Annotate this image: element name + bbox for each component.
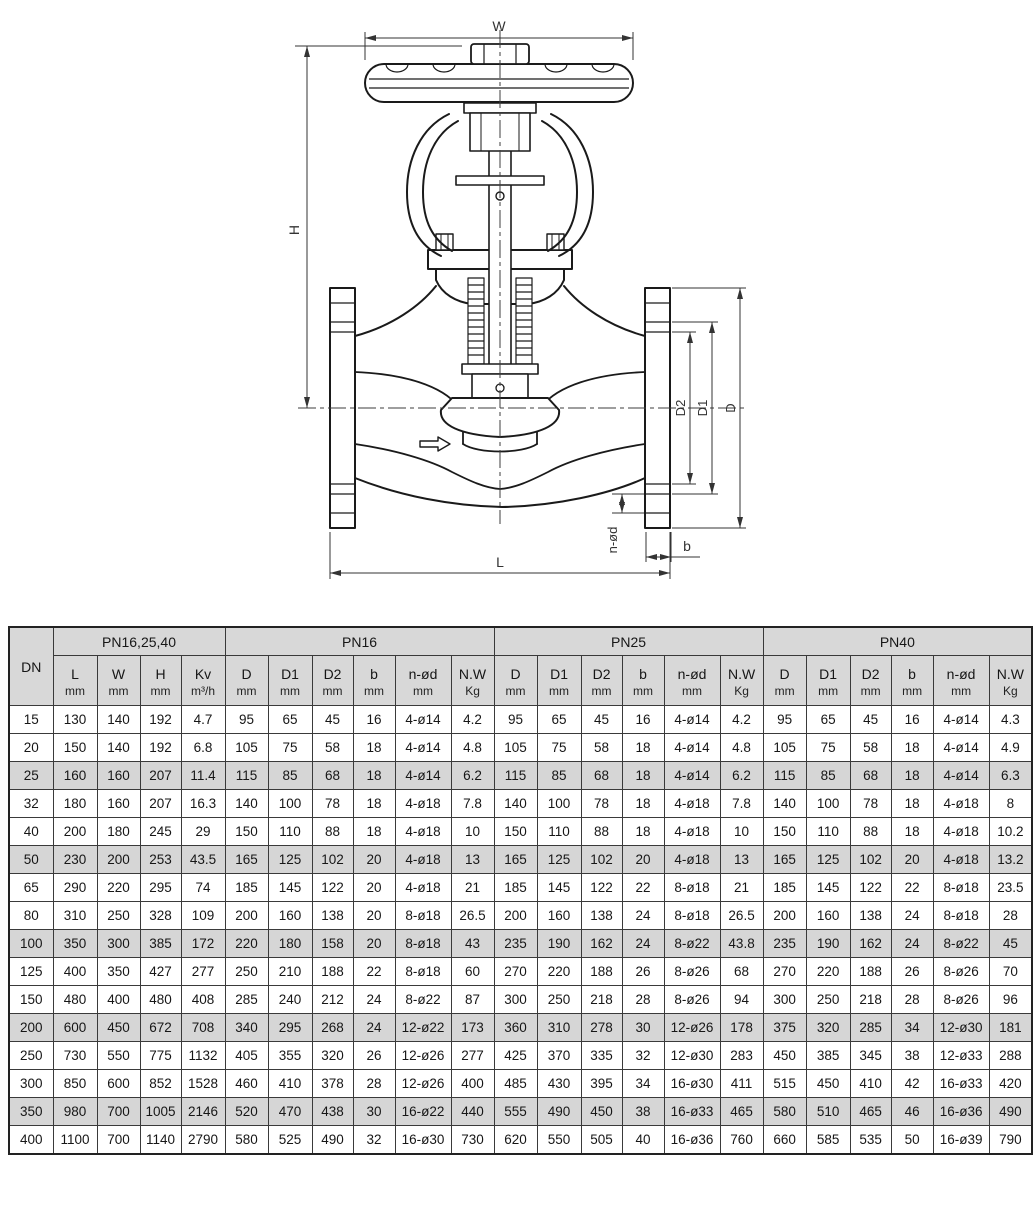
cell: 138 xyxy=(581,902,622,930)
cell: 490 xyxy=(989,1098,1032,1126)
cell: 207 xyxy=(140,762,181,790)
table-row-dn-400: 4001100700114027905805254903216-ø3073062… xyxy=(9,1126,1032,1155)
cell: 4-ø14 xyxy=(395,706,451,734)
cell: 1100 xyxy=(53,1126,97,1155)
cell: 181 xyxy=(989,1014,1032,1042)
cell: 178 xyxy=(720,1014,763,1042)
cell: 58 xyxy=(850,734,891,762)
cell: 620 xyxy=(494,1126,537,1155)
cell: 160 xyxy=(97,790,140,818)
cell: 730 xyxy=(53,1042,97,1070)
cell: 285 xyxy=(225,986,268,1014)
cell: 1132 xyxy=(181,1042,225,1070)
cell: 21 xyxy=(720,874,763,902)
cell: 16-ø36 xyxy=(664,1126,720,1155)
cell: 245 xyxy=(140,818,181,846)
cell: 525 xyxy=(268,1126,312,1155)
cell: 18 xyxy=(353,818,395,846)
cell: 45 xyxy=(989,930,1032,958)
cell: 20 xyxy=(353,874,395,902)
cell: 775 xyxy=(140,1042,181,1070)
dimension-table: DNPN16,25,40PN16PN25PN40LmmWmmHmmKvm³/hD… xyxy=(8,626,1033,1155)
col-header-pn16-d: Dmm xyxy=(225,656,268,706)
table-row-dn-20: 201501401926.81057558184-ø144.8105755818… xyxy=(9,734,1032,762)
cell: 13 xyxy=(451,846,494,874)
cell: 290 xyxy=(53,874,97,902)
cell: 20 xyxy=(353,846,395,874)
cell: 8-ø22 xyxy=(664,930,720,958)
col-header-pn16-25-40-kv: Kvm³/h xyxy=(181,656,225,706)
cell: 4.3 xyxy=(989,706,1032,734)
cell: 18 xyxy=(891,762,933,790)
cell: 115 xyxy=(494,762,537,790)
cell: 95 xyxy=(225,706,268,734)
cell: 50 xyxy=(891,1126,933,1155)
cell: 6.2 xyxy=(720,762,763,790)
cell: 207 xyxy=(140,790,181,818)
cell: 12-ø30 xyxy=(933,1014,989,1042)
cell: 32 xyxy=(353,1126,395,1155)
cell: 400 xyxy=(451,1070,494,1098)
cell: 125 xyxy=(268,846,312,874)
cell: 200 xyxy=(53,818,97,846)
cell: 250 xyxy=(97,902,140,930)
table-row-dn-100: 100350300385172220180158208-ø18432351901… xyxy=(9,930,1032,958)
cell: 16-ø30 xyxy=(664,1070,720,1098)
cell-dn: 32 xyxy=(9,790,53,818)
cell: 102 xyxy=(581,846,622,874)
cell: 355 xyxy=(268,1042,312,1070)
header-group-row: DNPN16,25,40PN16PN25PN40 xyxy=(9,627,1032,656)
col-header-pn16-n-d: n-ødmm xyxy=(395,656,451,706)
cell: 22 xyxy=(891,874,933,902)
cell: 7.8 xyxy=(451,790,494,818)
cell: 122 xyxy=(581,874,622,902)
cell: 88 xyxy=(581,818,622,846)
cell: 180 xyxy=(97,818,140,846)
cell: 4-ø18 xyxy=(395,790,451,818)
group-header-pn16: PN16 xyxy=(225,627,494,656)
cell: 65 xyxy=(268,706,312,734)
cell: 550 xyxy=(537,1126,581,1155)
cell: 410 xyxy=(850,1070,891,1098)
cell: 188 xyxy=(581,958,622,986)
cell: 510 xyxy=(806,1098,850,1126)
cell: 21 xyxy=(451,874,494,902)
cell: 30 xyxy=(353,1098,395,1126)
cell: 980 xyxy=(53,1098,97,1126)
cell: 18 xyxy=(891,734,933,762)
cell: 34 xyxy=(622,1070,664,1098)
cell: 75 xyxy=(537,734,581,762)
cell: 600 xyxy=(97,1070,140,1098)
cell: 218 xyxy=(581,986,622,1014)
cell: 94 xyxy=(720,986,763,1014)
cell: 20 xyxy=(353,902,395,930)
cell: 150 xyxy=(225,818,268,846)
cell: 75 xyxy=(806,734,850,762)
cell: 220 xyxy=(97,874,140,902)
cell: 102 xyxy=(850,846,891,874)
cell: 43 xyxy=(451,930,494,958)
cell: 490 xyxy=(537,1098,581,1126)
cell: 480 xyxy=(53,986,97,1014)
cell: 24 xyxy=(622,902,664,930)
cell: 4-ø18 xyxy=(933,790,989,818)
cell: 320 xyxy=(806,1014,850,1042)
cell: 45 xyxy=(312,706,353,734)
cell: 140 xyxy=(763,790,806,818)
table-row-dn-125: 125400350427277250210188228-ø18602702201… xyxy=(9,958,1032,986)
cell: 58 xyxy=(312,734,353,762)
cell: 283 xyxy=(720,1042,763,1070)
col-header-pn25-d2: D2mm xyxy=(581,656,622,706)
cell: 250 xyxy=(537,986,581,1014)
cell: 11.4 xyxy=(181,762,225,790)
col-header-dn: DN xyxy=(9,627,53,706)
cell: 200 xyxy=(494,902,537,930)
cell: 65 xyxy=(806,706,850,734)
cell: 4-ø18 xyxy=(933,818,989,846)
cell: 13 xyxy=(720,846,763,874)
cell: 185 xyxy=(763,874,806,902)
col-header-pn40-n-d: n-ødmm xyxy=(933,656,989,706)
cell: 87 xyxy=(451,986,494,1014)
cell: 43.8 xyxy=(720,930,763,958)
col-header-pn25-n-w: N.WKg xyxy=(720,656,763,706)
cell: 68 xyxy=(581,762,622,790)
cell: 4-ø14 xyxy=(664,706,720,734)
cell: 58 xyxy=(581,734,622,762)
cell: 250 xyxy=(225,958,268,986)
cell: 100 xyxy=(806,790,850,818)
cell: 580 xyxy=(225,1126,268,1155)
cell: 12-ø26 xyxy=(395,1070,451,1098)
cell: 130 xyxy=(53,706,97,734)
cell: 410 xyxy=(268,1070,312,1098)
dim-label-b: b xyxy=(683,538,691,554)
dim-label-d: D xyxy=(723,403,738,412)
group-header-pn25: PN25 xyxy=(494,627,763,656)
cell: 218 xyxy=(850,986,891,1014)
cell: 162 xyxy=(581,930,622,958)
table-body: 151301401924.7956545164-ø144.2956545164-… xyxy=(9,706,1032,1155)
cell: 192 xyxy=(140,734,181,762)
cell: 145 xyxy=(268,874,312,902)
cell-dn: 20 xyxy=(9,734,53,762)
cell: 88 xyxy=(850,818,891,846)
cell-dn: 80 xyxy=(9,902,53,930)
cell: 320 xyxy=(312,1042,353,1070)
cell: 505 xyxy=(581,1126,622,1155)
cell: 328 xyxy=(140,902,181,930)
cell: 235 xyxy=(494,930,537,958)
cell: 8-ø18 xyxy=(395,958,451,986)
cell: 162 xyxy=(850,930,891,958)
cell: 140 xyxy=(97,734,140,762)
cell: 190 xyxy=(806,930,850,958)
cell: 465 xyxy=(850,1098,891,1126)
cell: 8-ø18 xyxy=(395,902,451,930)
col-header-pn40-b: bmm xyxy=(891,656,933,706)
cell: 68 xyxy=(720,958,763,986)
cell: 45 xyxy=(581,706,622,734)
dim-n-od: n-ød xyxy=(605,494,644,553)
cell: 29 xyxy=(181,818,225,846)
cell: 852 xyxy=(140,1070,181,1098)
cell: 122 xyxy=(850,874,891,902)
cell: 370 xyxy=(537,1042,581,1070)
cell: 300 xyxy=(97,930,140,958)
cell: 8-ø26 xyxy=(933,958,989,986)
cell: 26.5 xyxy=(720,902,763,930)
table-row-dn-15: 151301401924.7956545164-ø144.2956545164-… xyxy=(9,706,1032,734)
cell: 173 xyxy=(451,1014,494,1042)
cell: 60 xyxy=(451,958,494,986)
cell: 78 xyxy=(850,790,891,818)
cell: 200 xyxy=(97,846,140,874)
cell: 105 xyxy=(494,734,537,762)
cell: 100 xyxy=(537,790,581,818)
cell: 6.3 xyxy=(989,762,1032,790)
cell: 277 xyxy=(451,1042,494,1070)
cell: 24 xyxy=(353,986,395,1014)
cell: 300 xyxy=(494,986,537,1014)
cell: 78 xyxy=(581,790,622,818)
cell: 85 xyxy=(806,762,850,790)
cell: 188 xyxy=(312,958,353,986)
cell: 4-ø18 xyxy=(395,818,451,846)
cell: 708 xyxy=(181,1014,225,1042)
cell: 1005 xyxy=(140,1098,181,1126)
cell-dn: 300 xyxy=(9,1070,53,1098)
cell: 180 xyxy=(268,930,312,958)
cell-dn: 350 xyxy=(9,1098,53,1126)
cell: 145 xyxy=(806,874,850,902)
cell: 460 xyxy=(225,1070,268,1098)
valve-technical-drawing: W H L D2 D1 D xyxy=(0,0,1035,610)
cell: 8-ø26 xyxy=(933,986,989,1014)
cell-dn: 65 xyxy=(9,874,53,902)
cell: 172 xyxy=(181,930,225,958)
col-header-pn16-d1: D1mm xyxy=(268,656,312,706)
cell: 4-ø14 xyxy=(395,762,451,790)
cell: 470 xyxy=(268,1098,312,1126)
cell: 150 xyxy=(494,818,537,846)
cell: 4-ø18 xyxy=(933,846,989,874)
cell: 240 xyxy=(268,986,312,1014)
col-header-pn40-d1: D1mm xyxy=(806,656,850,706)
cell: 220 xyxy=(806,958,850,986)
cell-dn: 15 xyxy=(9,706,53,734)
header-cols-row: LmmWmmHmmKvm³/hDmmD1mmD2mmbmmn-ødmmN.WKg… xyxy=(9,656,1032,706)
cell: 16-ø30 xyxy=(395,1126,451,1155)
cell: 411 xyxy=(720,1070,763,1098)
cell: 672 xyxy=(140,1014,181,1042)
cell: 10.2 xyxy=(989,818,1032,846)
cell: 300 xyxy=(763,986,806,1014)
cell: 555 xyxy=(494,1098,537,1126)
cell: 350 xyxy=(53,930,97,958)
cell: 4-ø18 xyxy=(664,846,720,874)
cell: 400 xyxy=(53,958,97,986)
cell: 850 xyxy=(53,1070,97,1098)
cell: 385 xyxy=(806,1042,850,1070)
col-header-pn25-b: bmm xyxy=(622,656,664,706)
cell: 160 xyxy=(806,902,850,930)
cell: 32 xyxy=(622,1042,664,1070)
cell: 16.3 xyxy=(181,790,225,818)
cell: 760 xyxy=(720,1126,763,1155)
cell: 8 xyxy=(989,790,1032,818)
cell: 140 xyxy=(97,706,140,734)
cell: 490 xyxy=(312,1126,353,1155)
cell: 8-ø18 xyxy=(933,874,989,902)
cell: 2790 xyxy=(181,1126,225,1155)
cell: 480 xyxy=(140,986,181,1014)
cell: 42 xyxy=(891,1070,933,1098)
col-header-pn40-d: Dmm xyxy=(763,656,806,706)
cell: 70 xyxy=(989,958,1032,986)
cell: 4.9 xyxy=(989,734,1032,762)
cell: 110 xyxy=(806,818,850,846)
cell: 26 xyxy=(891,958,933,986)
cell: 438 xyxy=(312,1098,353,1126)
cell: 4.2 xyxy=(451,706,494,734)
cell: 8-ø18 xyxy=(664,902,720,930)
table-row-dn-350: 350980700100521465204704383016-ø22440555… xyxy=(9,1098,1032,1126)
cell: 18 xyxy=(622,762,664,790)
cell: 450 xyxy=(763,1042,806,1070)
cell: 18 xyxy=(622,818,664,846)
cell: 115 xyxy=(763,762,806,790)
cell: 730 xyxy=(451,1126,494,1155)
cell: 1528 xyxy=(181,1070,225,1098)
cell: 230 xyxy=(53,846,97,874)
cell: 110 xyxy=(268,818,312,846)
cell: 110 xyxy=(537,818,581,846)
cell: 20 xyxy=(622,846,664,874)
cell: 660 xyxy=(763,1126,806,1155)
cell: 6.8 xyxy=(181,734,225,762)
cell: 34 xyxy=(891,1014,933,1042)
cell: 310 xyxy=(53,902,97,930)
cell: 250 xyxy=(806,986,850,1014)
cell: 96 xyxy=(989,986,1032,1014)
cell: 4-ø14 xyxy=(664,762,720,790)
cell: 12-ø30 xyxy=(664,1042,720,1070)
cell: 515 xyxy=(763,1070,806,1098)
table-row-dn-25: 2516016020711.41158568184-ø146.211585681… xyxy=(9,762,1032,790)
cell: 4-ø14 xyxy=(933,762,989,790)
handwheel xyxy=(365,44,633,102)
cell-dn: 50 xyxy=(9,846,53,874)
col-header-pn16-n-w: N.WKg xyxy=(451,656,494,706)
cell: 28 xyxy=(891,986,933,1014)
cell-dn: 200 xyxy=(9,1014,53,1042)
cell: 26 xyxy=(353,1042,395,1070)
cell: 18 xyxy=(891,790,933,818)
cell: 109 xyxy=(181,902,225,930)
cell: 450 xyxy=(581,1098,622,1126)
cell: 165 xyxy=(494,846,537,874)
cell: 74 xyxy=(181,874,225,902)
cell: 20 xyxy=(353,930,395,958)
cell: 180 xyxy=(53,790,97,818)
cell: 378 xyxy=(312,1070,353,1098)
cell: 65 xyxy=(537,706,581,734)
cell: 16 xyxy=(622,706,664,734)
cell: 220 xyxy=(537,958,581,986)
dim-label-d2: D2 xyxy=(673,400,688,417)
cell: 4-ø14 xyxy=(933,734,989,762)
cell: 16 xyxy=(353,706,395,734)
dim-label-d1: D1 xyxy=(695,400,710,417)
cell: 700 xyxy=(97,1126,140,1155)
cell: 395 xyxy=(581,1070,622,1098)
cell: 158 xyxy=(312,930,353,958)
col-header-pn25-n-d: n-ødmm xyxy=(664,656,720,706)
cell: 585 xyxy=(806,1126,850,1155)
cell: 102 xyxy=(312,846,353,874)
cell: 295 xyxy=(268,1014,312,1042)
cell: 268 xyxy=(312,1014,353,1042)
cell: 12-ø33 xyxy=(933,1042,989,1070)
cell: 115 xyxy=(225,762,268,790)
col-header-pn40-n-w: N.WKg xyxy=(989,656,1032,706)
cell: 192 xyxy=(140,706,181,734)
cell: 4-ø14 xyxy=(933,706,989,734)
cell: 140 xyxy=(494,790,537,818)
cell: 10 xyxy=(451,818,494,846)
cell-dn: 400 xyxy=(9,1126,53,1155)
table-row-dn-300: 30085060085215284604103782812-ø264004854… xyxy=(9,1070,1032,1098)
cell: 4.8 xyxy=(720,734,763,762)
cell: 210 xyxy=(268,958,312,986)
cell: 150 xyxy=(763,818,806,846)
cell: 220 xyxy=(225,930,268,958)
cell-dn: 250 xyxy=(9,1042,53,1070)
cell: 450 xyxy=(806,1070,850,1098)
cell: 8-ø22 xyxy=(933,930,989,958)
cell: 4.8 xyxy=(451,734,494,762)
cell: 430 xyxy=(537,1070,581,1098)
cell: 24 xyxy=(891,902,933,930)
cell: 550 xyxy=(97,1042,140,1070)
cell: 22 xyxy=(353,958,395,986)
cell: 68 xyxy=(312,762,353,790)
cell: 16 xyxy=(891,706,933,734)
cell: 28 xyxy=(622,986,664,1014)
cell: 30 xyxy=(622,1014,664,1042)
cell: 360 xyxy=(494,1014,537,1042)
cell: 6.2 xyxy=(451,762,494,790)
dim-label-h: H xyxy=(286,225,302,235)
cell: 235 xyxy=(763,930,806,958)
cell: 185 xyxy=(494,874,537,902)
table-row-dn-150: 150480400480408285240212248-ø22873002502… xyxy=(9,986,1032,1014)
cell: 385 xyxy=(140,930,181,958)
cell: 95 xyxy=(763,706,806,734)
col-header-pn16-25-40-l: Lmm xyxy=(53,656,97,706)
cell: 140 xyxy=(225,790,268,818)
cell-dn: 125 xyxy=(9,958,53,986)
cell: 160 xyxy=(268,902,312,930)
cell: 4-ø18 xyxy=(395,846,451,874)
table-row-dn-32: 3218016020716.314010078184-ø187.81401007… xyxy=(9,790,1032,818)
table-row-dn-50: 5023020025343.5165125102204-ø18131651251… xyxy=(9,846,1032,874)
table-row-dn-80: 80310250328109200160138208-ø1826.5200160… xyxy=(9,902,1032,930)
